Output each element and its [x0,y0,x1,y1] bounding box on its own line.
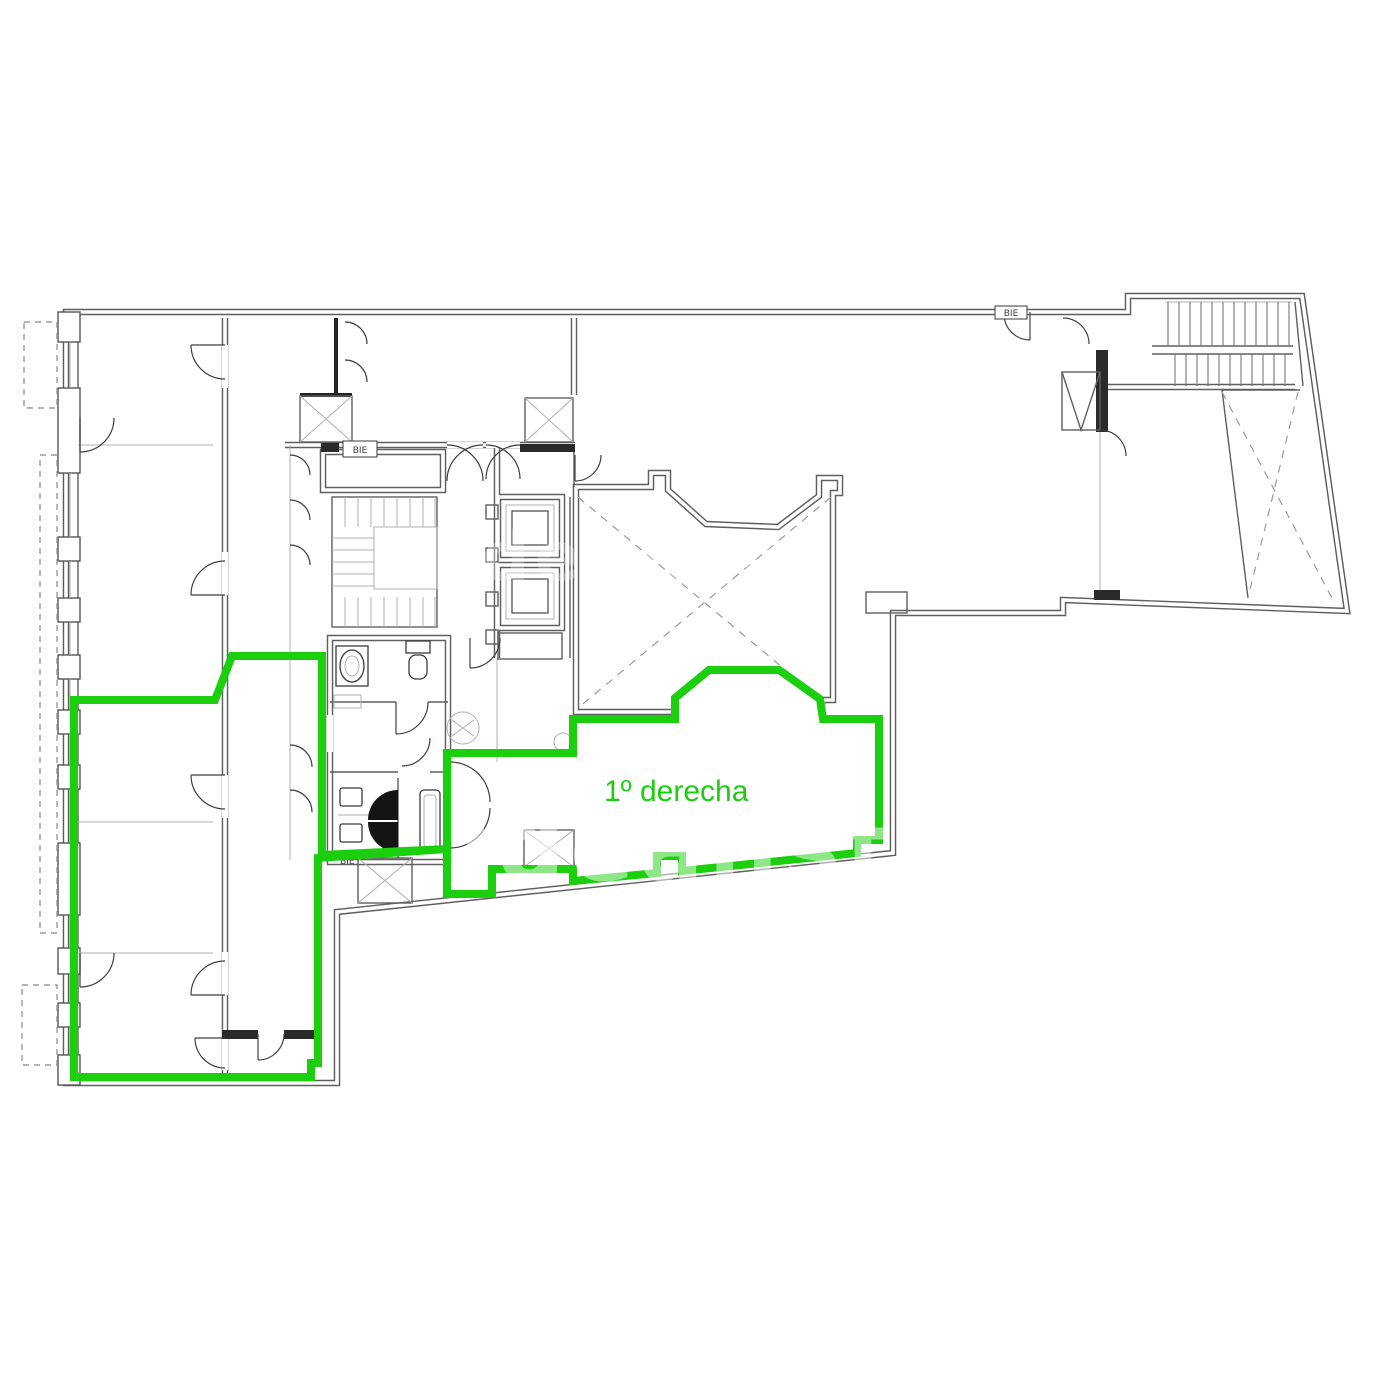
watermark: idealista idealista [453,518,965,903]
balconies [22,322,57,1065]
doors [80,314,1126,1068]
floor-plan-svg: BIE BIE BIE idealista idealista 1º derec… [0,0,1400,1400]
main-staircase [332,497,437,627]
bie-label-stair: BIE [353,446,368,456]
unit-label: 1º derecha [604,775,749,808]
outer-walls [66,296,1347,1083]
northeast-staircase [1152,302,1303,386]
bie-label-top: BIE [1004,309,1019,319]
svg-text:idealista: idealista [459,793,964,903]
misc-symbols [447,712,572,751]
floor-plan-page: BIE BIE BIE idealista idealista 1º derec… [0,0,1400,1400]
storage-lightwell [1222,392,1332,598]
svg-text:idealista: idealista [453,518,827,597]
bathrooms [330,641,448,858]
